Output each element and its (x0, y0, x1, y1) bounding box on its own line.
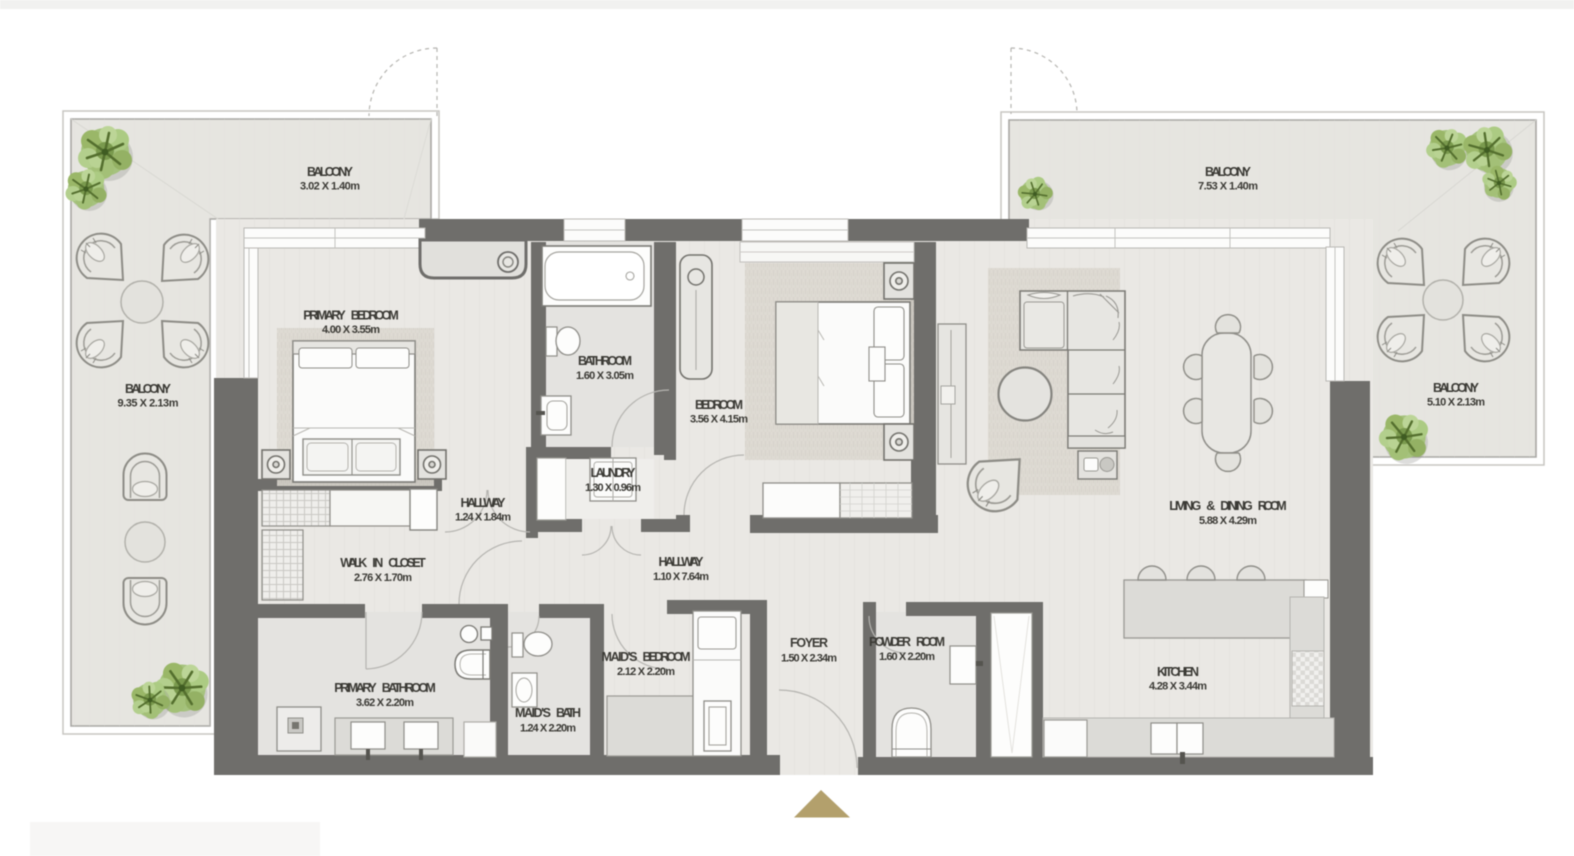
svg-text:1.24 X 1.84m: 1.24 X 1.84m (455, 512, 511, 524)
svg-text:BALCONY: BALCONY (125, 382, 172, 396)
svg-text:4.28 X 3.44m: 4.28 X 3.44m (1149, 681, 1207, 693)
svg-text:4.00 X 3.55m: 4.00 X 3.55m (322, 324, 380, 336)
svg-text:BATHROOM: BATHROOM (382, 681, 436, 695)
svg-text:POWDER: POWDER (869, 635, 911, 649)
svg-text:LAUNDRY: LAUNDRY (591, 466, 637, 480)
svg-text:7.53 X 1.40m: 7.53 X 1.40m (1198, 181, 1258, 193)
svg-text:1.24 X 2.20m: 1.24 X 2.20m (520, 723, 576, 735)
svg-text:2.76 X 1.70m: 2.76 X 1.70m (354, 572, 412, 584)
svg-text:&: & (1206, 499, 1215, 513)
svg-text:BALCONY: BALCONY (1205, 165, 1252, 179)
svg-text:5.10 X 2.13m: 5.10 X 2.13m (1427, 397, 1485, 409)
svg-text:3.62 X 2.20m: 3.62 X 2.20m (356, 697, 414, 709)
svg-text:BATH: BATH (556, 706, 581, 720)
svg-text:MAID'S: MAID'S (602, 650, 638, 664)
svg-text:9.35 X 2.13m: 9.35 X 2.13m (118, 398, 179, 410)
svg-text:WALK: WALK (340, 556, 367, 570)
svg-text:DINING: DINING (1220, 499, 1253, 513)
svg-text:PRIMARY: PRIMARY (303, 309, 346, 323)
svg-text:CLOSET: CLOSET (388, 556, 426, 570)
svg-text:BEDROOM: BEDROOM (643, 650, 691, 664)
svg-text:2.12 X 2.20m: 2.12 X 2.20m (617, 666, 675, 678)
svg-text:BALCONY: BALCONY (307, 165, 354, 179)
svg-text:1.60 X 2.20m: 1.60 X 2.20m (879, 651, 935, 663)
svg-text:5.88 X 4.29m: 5.88 X 4.29m (1199, 515, 1257, 527)
svg-text:IN: IN (372, 556, 383, 570)
svg-text:3.02 X 1.40m: 3.02 X 1.40m (300, 181, 360, 193)
svg-text:1.10 X 7.64m: 1.10 X 7.64m (653, 571, 709, 583)
svg-text:HALLWAY: HALLWAY (461, 496, 507, 510)
svg-text:LIVING: LIVING (1169, 499, 1201, 513)
svg-text:1.30 X 0.96m: 1.30 X 0.96m (585, 482, 641, 494)
svg-text:KITCHEN: KITCHEN (1157, 665, 1199, 679)
svg-text:BEDROOM: BEDROOM (351, 309, 399, 323)
svg-text:3.56 X 4.15m: 3.56 X 4.15m (690, 414, 748, 426)
svg-text:1.50 X 2.34m: 1.50 X 2.34m (781, 653, 837, 665)
svg-text:BALCONY: BALCONY (1433, 381, 1480, 395)
svg-text:PRIMARY: PRIMARY (334, 681, 377, 695)
svg-text:ROOM: ROOM (1258, 499, 1287, 513)
svg-text:HALLWAY: HALLWAY (659, 555, 705, 569)
svg-text:MAID'S: MAID'S (515, 706, 551, 720)
svg-text:1.60 X 3.05m: 1.60 X 3.05m (576, 370, 634, 382)
svg-text:FOYER: FOYER (790, 636, 828, 650)
svg-text:ROOM: ROOM (916, 635, 945, 649)
svg-text:BEDROOM: BEDROOM (695, 398, 743, 412)
svg-text:BATHROOM: BATHROOM (578, 354, 632, 368)
